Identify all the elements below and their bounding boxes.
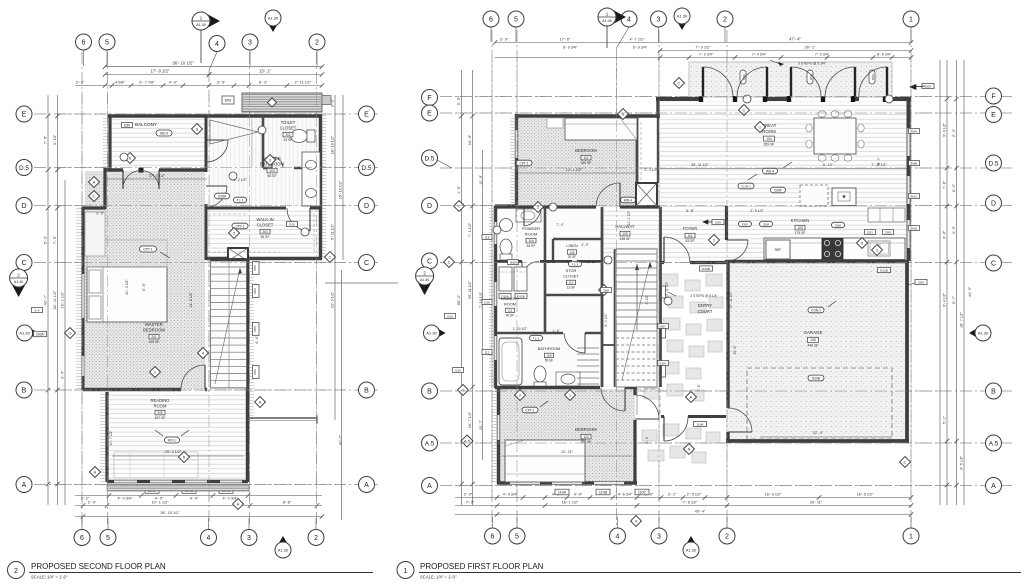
svg-text:C: C <box>904 460 907 465</box>
svg-text:D08: D08 <box>603 288 609 292</box>
svg-text:36'- 10 1/2": 36'- 10 1/2" <box>160 511 180 515</box>
svg-text:A: A <box>259 400 262 405</box>
svg-text:24 SF: 24 SF <box>283 138 292 142</box>
svg-text:D.5: D.5 <box>425 155 435 162</box>
svg-text:18'- 10 1/2": 18'- 10 1/2" <box>331 135 335 154</box>
svg-text:135 SF: 135 SF <box>620 237 631 241</box>
svg-text:2'- 5 1/2": 2'- 5 1/2" <box>687 492 702 496</box>
svg-text:36'- 10 1/2": 36'- 10 1/2" <box>172 61 194 66</box>
svg-text:2'- 9 1/2": 2'- 9 1/2" <box>750 209 764 213</box>
svg-text:RD-1: RD-1 <box>168 438 176 442</box>
svg-text:4: 4 <box>616 534 620 541</box>
svg-text:D06: D06 <box>660 361 666 365</box>
svg-text:13 SF: 13 SF <box>567 285 576 289</box>
svg-text:5: 5 <box>106 535 110 542</box>
svg-text:A1.40: A1.40 <box>602 19 611 23</box>
svg-text:BEDROOM: BEDROOM <box>575 427 597 432</box>
svg-text:D58: D58 <box>835 223 841 227</box>
svg-text:8'- 9 3/4": 8'- 9 3/4" <box>563 45 578 49</box>
svg-text:3: 3 <box>657 534 661 541</box>
svg-text:7'- 5": 7'- 5" <box>53 235 57 244</box>
svg-text:HALLWAY: HALLWAY <box>615 224 634 229</box>
svg-text:110A: 110A <box>558 490 567 494</box>
svg-text:96 SF: 96 SF <box>260 235 269 239</box>
svg-text:202: 202 <box>285 133 291 137</box>
svg-text:FOYER: FOYER <box>683 226 697 231</box>
svg-text:13'- 1": 13'- 1" <box>259 68 271 73</box>
svg-text:34 SF: 34 SF <box>526 244 535 248</box>
svg-text:A: A <box>237 502 240 507</box>
svg-text:3'- 8": 3'- 8" <box>943 230 947 239</box>
svg-text:D59: D59 <box>715 220 721 224</box>
svg-text:7'- 9 3/4": 7'- 9 3/4" <box>699 52 714 56</box>
svg-text:BALCONY: BALCONY <box>135 122 157 127</box>
svg-text:D53: D53 <box>867 230 873 234</box>
svg-text:16'- 1 1/2": 16'- 1 1/2" <box>562 500 579 504</box>
svg-text:A: A <box>427 483 432 490</box>
svg-text:63 SF: 63 SF <box>685 239 694 243</box>
svg-text:7'- 9": 7'- 9" <box>466 500 475 504</box>
svg-text:G: G <box>68 331 71 336</box>
svg-text:PROPOSED FIRST FLOOR PLAN: PROPOSED FIRST FLOOR PLAN <box>420 562 544 571</box>
svg-text:10'- 11 1/2": 10'- 11 1/2" <box>665 281 669 298</box>
svg-text:ENTRY: ENTRY <box>698 303 712 308</box>
svg-text:6 - 7 7/8": 6 - 7 7/8" <box>139 80 155 84</box>
svg-text:CPT-1: CPT-1 <box>519 161 528 165</box>
svg-text:6'- 4 1/2": 6'- 4 1/2" <box>943 292 947 307</box>
svg-text:CPT-1: CPT-1 <box>235 224 244 228</box>
svg-text:3'- 10": 3'- 10" <box>53 134 57 145</box>
svg-text:2: 2 <box>14 568 18 575</box>
svg-text:D10B: D10B <box>702 267 710 271</box>
svg-text:104: 104 <box>766 137 772 141</box>
svg-text:WD-4: WD-4 <box>766 169 774 173</box>
svg-text:D09: D09 <box>918 280 924 284</box>
svg-text:2'- 9": 2'- 9" <box>464 492 473 496</box>
svg-text:4'- 0": 4'- 0" <box>169 80 178 84</box>
svg-text:C: C <box>743 108 746 113</box>
svg-text:D: D <box>364 203 369 210</box>
svg-text:30'- 8": 30'- 8" <box>733 345 737 355</box>
svg-text:6: 6 <box>82 40 86 47</box>
svg-text:16'- 1 1/2": 16'- 1 1/2" <box>61 291 65 309</box>
svg-text:A: A <box>93 180 96 185</box>
svg-text:204: 204 <box>262 230 268 234</box>
svg-text:POWDER: POWDER <box>522 226 540 231</box>
svg-text:CPT-1: CPT-1 <box>143 247 153 251</box>
svg-text:W0.4: W0.4 <box>160 131 168 135</box>
svg-text:D: D <box>427 203 432 210</box>
svg-text:D13: D13 <box>455 368 461 372</box>
svg-text:45'- 4": 45'- 4" <box>695 509 706 513</box>
svg-text:A: A <box>688 447 691 452</box>
svg-text:D56: D56 <box>253 288 257 294</box>
svg-text:A1.30: A1.30 <box>978 331 989 336</box>
svg-text:11'- 1 1/2": 11'- 1 1/2" <box>627 210 631 225</box>
svg-text:8'- 7": 8'- 7" <box>877 157 881 164</box>
svg-text:WALK-IN: WALK-IN <box>256 217 273 222</box>
svg-text:C: C <box>93 194 96 199</box>
svg-text:CLOSET: CLOSET <box>257 223 274 228</box>
svg-text:7'- 6 1/2": 7'- 6 1/2" <box>683 500 698 504</box>
svg-text:2'- 4": 2'- 4" <box>645 435 649 443</box>
svg-text:3'- 4": 3'- 4" <box>61 370 65 379</box>
svg-text:B: B <box>991 389 996 396</box>
svg-text:5: 5 <box>514 17 518 24</box>
svg-text:6: 6 <box>80 535 84 542</box>
svg-text:TL-1: TL-1 <box>572 262 579 266</box>
svg-text:3: 3 <box>247 535 251 542</box>
svg-text:D29F: D29F <box>774 188 782 192</box>
svg-text:D19: D19 <box>289 222 295 226</box>
svg-text:W02: W02 <box>225 98 232 102</box>
svg-text:D09: D09 <box>925 84 931 88</box>
svg-text:C: C <box>991 261 996 268</box>
svg-text:4'- 0": 4'- 0" <box>190 496 199 500</box>
svg-text:LINEN: LINEN <box>566 244 577 248</box>
svg-text:D4D: D4D <box>911 226 918 230</box>
svg-text:4'- 6 3/4": 4'- 6 3/4" <box>618 492 633 496</box>
svg-text:C: C <box>678 81 681 86</box>
svg-text:STOR: STOR <box>566 268 577 273</box>
svg-text:2'- 4": 2'- 4" <box>952 128 956 137</box>
svg-text:D.5: D.5 <box>362 165 372 172</box>
svg-text:A1.40: A1.40 <box>196 23 205 27</box>
svg-text:4 5/8": 4 5/8" <box>115 80 125 84</box>
svg-text:59 SF: 59 SF <box>545 358 554 362</box>
svg-text:103: 103 <box>583 435 589 439</box>
svg-text:D12B: D12B <box>880 268 888 272</box>
svg-text:D.5: D.5 <box>989 160 999 167</box>
svg-text:2'- 11 1/2": 2'- 11 1/2" <box>295 80 312 84</box>
svg-text:KITCHEN: KITCHEN <box>791 218 809 223</box>
svg-text:179 SF: 179 SF <box>795 231 806 235</box>
svg-text:E: E <box>364 112 369 119</box>
svg-text:4'- 7 1/2": 4'- 7 1/2" <box>630 37 646 41</box>
svg-text:6'- 6": 6'- 6" <box>142 282 146 290</box>
svg-text:D: D <box>21 203 26 210</box>
svg-text:110C: 110C <box>638 490 647 494</box>
svg-text:D4B: D4B <box>911 161 917 165</box>
svg-text:PROPOSED SECOND FLOOR PLAN: PROPOSED SECOND FLOOR PLAN <box>31 562 166 571</box>
svg-text:10'- 9": 10'- 9" <box>468 134 472 145</box>
svg-text:A1.30: A1.30 <box>278 548 289 553</box>
svg-text:30'- 11": 30'- 11" <box>810 500 823 504</box>
svg-text:D59: D59 <box>885 230 891 234</box>
svg-text:5: 5 <box>105 40 109 47</box>
svg-text:A1.30: A1.30 <box>426 331 437 336</box>
svg-text:3: 3 <box>248 40 252 47</box>
svg-text:ROOM: ROOM <box>153 404 167 409</box>
svg-text:440 SF: 440 SF <box>808 343 819 347</box>
svg-text:8'- 8": 8'- 8" <box>686 209 694 213</box>
svg-text:7'- 9 1/2": 7'- 9 1/2" <box>696 45 712 49</box>
svg-text:CPT-1: CPT-1 <box>525 408 534 412</box>
svg-text:D4A: D4A <box>911 129 917 133</box>
svg-text:5'- 5": 5'- 5" <box>457 96 461 105</box>
svg-text:6'- 0": 6'- 0" <box>952 183 956 192</box>
svg-text:CON-1: CON-1 <box>741 184 751 188</box>
svg-text:BEDROOM: BEDROOM <box>143 328 165 333</box>
svg-text:G: G <box>461 388 464 393</box>
svg-text:157 SF: 157 SF <box>155 416 166 420</box>
svg-text:A: A <box>991 483 996 490</box>
svg-text:3'- 1": 3'- 1" <box>668 492 677 496</box>
svg-text:D28A: D28A <box>218 194 227 198</box>
svg-text:102: 102 <box>583 156 589 160</box>
svg-text:1'- 6": 1'- 6" <box>457 185 461 193</box>
svg-text:32'- 11 1/2": 32'- 11 1/2" <box>53 290 57 310</box>
svg-text:6: 6 <box>489 17 493 24</box>
svg-text:4: 4 <box>627 17 631 24</box>
svg-text:D07: D07 <box>660 324 666 328</box>
svg-text:20'- 11 1/2": 20'- 11 1/2" <box>468 280 472 299</box>
svg-text:1'- 10 1/2": 1'- 10 1/2" <box>513 327 527 331</box>
svg-text:SCALE: 1/4" = 1'-0": SCALE: 1/4" = 1'-0" <box>420 575 457 580</box>
svg-text:A.5: A.5 <box>989 440 999 447</box>
svg-text:40 SF: 40 SF <box>506 313 515 317</box>
svg-text:6'- 9 3/4": 6'- 9 3/4" <box>633 45 648 49</box>
svg-text:A1.40: A1.40 <box>14 280 23 284</box>
svg-text:103: 103 <box>797 226 803 230</box>
svg-text:4'- 5": 4'- 5" <box>952 225 956 234</box>
svg-text:D56: D56 <box>253 326 257 332</box>
svg-text:14'- 8 1/2": 14'- 8 1/2" <box>189 292 193 308</box>
svg-text:A1.30: A1.30 <box>677 14 688 19</box>
svg-text:D56: D56 <box>253 369 257 375</box>
svg-text:118: 118 <box>485 235 490 239</box>
svg-text:C: C <box>427 259 432 266</box>
svg-text:D.5: D.5 <box>19 165 29 172</box>
svg-text:D55: D55 <box>742 222 748 226</box>
svg-text:C: C <box>364 260 369 267</box>
svg-text:1: 1 <box>909 17 913 24</box>
svg-text:A: A <box>94 470 97 475</box>
svg-text:TOILET: TOILET <box>281 120 296 125</box>
svg-text:COURT: COURT <box>698 309 713 314</box>
svg-text:161 SF: 161 SF <box>581 440 592 444</box>
svg-text:359 SF: 359 SF <box>764 142 775 146</box>
svg-text:106: 106 <box>569 250 574 254</box>
svg-text:44'- 9": 44'- 9" <box>968 286 972 297</box>
svg-text:66 SF: 66 SF <box>267 174 276 178</box>
svg-text:3'- 0": 3'- 0" <box>581 243 589 247</box>
svg-text:15'- 2 1/2": 15'- 2 1/2" <box>165 450 182 454</box>
svg-text:13'- 3 1/2": 13'- 3 1/2" <box>331 291 335 308</box>
svg-text:A1.30: A1.30 <box>19 331 30 336</box>
svg-text:E: E <box>991 112 996 119</box>
svg-text:REF: REF <box>775 248 782 252</box>
svg-text:D58: D58 <box>763 222 769 226</box>
svg-text:5'- 1": 5'- 1" <box>943 415 947 424</box>
svg-text:109: 109 <box>546 354 551 358</box>
svg-text:20 SF: 20 SF <box>568 255 577 259</box>
svg-text:110A: 110A <box>697 422 705 426</box>
svg-text:7'- 0 3/4": 7'- 0 3/4" <box>815 52 830 56</box>
svg-text:D30: D30 <box>124 123 131 127</box>
svg-text:4'- 5 1/2": 4'- 5 1/2" <box>960 455 964 470</box>
svg-text:E: E <box>427 111 432 118</box>
svg-text:8'- 1 1/2": 8'- 1 1/2" <box>604 313 608 327</box>
svg-text:16'- 5 1/2": 16'- 5 1/2" <box>857 492 874 496</box>
svg-text:2 STEPS @ 5 1/4": 2 STEPS @ 5 1/4" <box>690 294 718 298</box>
svg-text:TL-1: TL-1 <box>237 198 244 202</box>
svg-text:111: 111 <box>508 309 513 313</box>
svg-text:205: 205 <box>157 411 163 415</box>
svg-text:4: 4 <box>207 535 211 542</box>
svg-text:7'- 4 3/4": 7'- 4 3/4" <box>752 52 767 56</box>
svg-text:7'- 4": 7'- 4" <box>556 223 564 227</box>
svg-text:B: B <box>22 388 27 395</box>
svg-text:C: C <box>21 260 26 267</box>
svg-text:4'- 0 3/4": 4'- 0 3/4" <box>118 496 134 500</box>
svg-text:10'- 7 1/2": 10'- 7 1/2" <box>109 430 113 446</box>
svg-text:1: 1 <box>404 568 408 575</box>
svg-text:WD-4: WD-4 <box>624 198 632 202</box>
svg-text:20'- 3 1/2": 20'- 3 1/2" <box>125 279 129 295</box>
svg-text:110B: 110B <box>599 490 608 494</box>
svg-text:108: 108 <box>810 338 816 342</box>
svg-text:5'- 3": 5'- 3" <box>44 235 48 244</box>
svg-text:B: B <box>364 388 369 395</box>
svg-text:16'- 7 1/2": 16'- 7 1/2" <box>468 411 472 428</box>
svg-text:GARAGE: GARAGE <box>804 330 823 335</box>
svg-text:D: D <box>991 201 996 208</box>
svg-text:CON-1: CON-1 <box>811 308 821 312</box>
svg-text:BEDROOM: BEDROOM <box>575 148 597 153</box>
svg-text:C: C <box>458 204 461 209</box>
svg-text:READING: READING <box>150 398 169 403</box>
svg-text:104: 104 <box>528 239 534 243</box>
svg-text:5: 5 <box>515 534 519 541</box>
svg-text:2: 2 <box>723 17 727 24</box>
svg-text:3'- 10": 3'- 10" <box>645 295 649 305</box>
svg-text:2'- 9": 2'- 9" <box>88 501 97 505</box>
svg-text:A1.30: A1.30 <box>268 16 279 21</box>
svg-text:10'- 1 1/2": 10'- 1 1/2" <box>151 501 169 505</box>
svg-text:C: C <box>329 255 332 260</box>
svg-text:8'- 6 3/4": 8'- 6 3/4" <box>877 52 892 56</box>
svg-text:110: 110 <box>569 281 574 285</box>
svg-text:203A: 203A <box>36 332 45 336</box>
svg-text:17'- 0 1/2": 17'- 0 1/2" <box>151 68 170 73</box>
svg-text:1: 1 <box>909 534 913 541</box>
svg-text:CLOSET: CLOSET <box>563 273 579 278</box>
svg-text:3 STEPS @ 5 3/4": 3 STEPS @ 5 3/4" <box>798 62 827 66</box>
svg-text:101: 101 <box>687 234 693 238</box>
svg-text:2: 2 <box>315 40 319 47</box>
svg-text:17'- 0 1/2": 17'- 0 1/2" <box>149 174 166 178</box>
svg-text:3'- 5": 3'- 5" <box>217 80 226 84</box>
svg-text:A: A <box>690 395 693 400</box>
svg-text:18'- 7 1/2": 18'- 7 1/2" <box>960 311 964 327</box>
svg-text:E: E <box>22 112 27 119</box>
svg-text:2'- 9": 2'- 9" <box>500 37 509 41</box>
svg-text:112: 112 <box>485 350 490 354</box>
svg-text:7'- 8": 7'- 8" <box>697 383 701 391</box>
svg-text:17'- 11 1/2": 17'- 11 1/2" <box>729 291 733 308</box>
svg-text:2'- 4 1/2": 2'- 4 1/2" <box>644 168 658 172</box>
svg-text:2: 2 <box>725 534 729 541</box>
svg-text:150 SF: 150 SF <box>581 161 592 165</box>
svg-text:4'- 0 3/4": 4'- 0 3/4" <box>223 496 239 500</box>
svg-text:A.5: A.5 <box>425 440 435 447</box>
svg-text:2'- 2": 2'- 2" <box>76 80 85 84</box>
svg-text:7'- 8": 7'- 8" <box>943 180 947 189</box>
svg-text:15'- 10 1/2": 15'- 10 1/2" <box>339 180 343 199</box>
svg-text:ROOM: ROOM <box>504 301 516 306</box>
svg-text:F: F <box>991 94 995 101</box>
svg-text:4'- 0": 4'- 0" <box>574 492 583 496</box>
svg-text:A1.30: A1.30 <box>686 548 697 553</box>
svg-text:30'- 1": 30'- 1" <box>805 45 816 49</box>
svg-text:TL-1: TL-1 <box>533 336 540 340</box>
svg-text:8'- 3": 8'- 3" <box>259 80 268 84</box>
svg-text:6'- 10": 6'- 10" <box>823 163 834 167</box>
svg-text:3: 3 <box>657 17 661 24</box>
svg-text:D15: D15 <box>447 314 453 318</box>
svg-text:22'- 4": 22'- 4" <box>813 431 824 435</box>
svg-text:12'- 11": 12'- 11" <box>561 450 574 454</box>
svg-text:D5A: D5A <box>871 74 875 80</box>
svg-text:2: 2 <box>314 535 318 542</box>
svg-text:105: 105 <box>622 232 628 236</box>
svg-text:16'- 5 1/2": 16'- 5 1/2" <box>765 492 782 496</box>
svg-text:SCALE: 1/4" = 1'-0": SCALE: 1/4" = 1'-0" <box>31 575 68 580</box>
svg-text:13'- 1 1/2": 13'- 1 1/2" <box>566 168 583 172</box>
svg-text:5'- 11 1/2": 5'- 11 1/2" <box>331 223 335 240</box>
svg-text:4'- 4": 4'- 4" <box>255 335 259 343</box>
svg-text:35'- 11 1/2": 35'- 11 1/2" <box>691 163 709 167</box>
svg-text:17'- 6": 17'- 6" <box>560 37 571 41</box>
svg-text:7'- 6": 7'- 6" <box>44 135 48 144</box>
svg-text:4: 4 <box>215 41 219 48</box>
svg-text:201: 201 <box>151 335 157 339</box>
svg-text:6: 6 <box>491 534 495 541</box>
svg-text:47'- 4": 47'- 4" <box>789 36 801 41</box>
svg-text:BATHROOM: BATHROOM <box>538 346 561 351</box>
svg-text:A: A <box>364 482 369 489</box>
svg-text:203: 203 <box>269 169 275 173</box>
svg-text:199 SF: 199 SF <box>149 340 160 344</box>
svg-text:D16: D16 <box>484 300 490 304</box>
svg-text:2'-4: 2'-4 <box>35 308 40 312</box>
svg-text:A: A <box>22 482 27 489</box>
svg-text:6'- 7": 6'- 7" <box>952 295 956 304</box>
svg-text:ROOM: ROOM <box>762 129 776 134</box>
svg-text:D20B: D20B <box>812 376 820 380</box>
svg-text:A1.40: A1.40 <box>420 278 429 282</box>
svg-text:8'- 6": 8'- 6" <box>283 501 292 505</box>
svg-text:9'- 9 1/2": 9'- 9 1/2" <box>943 122 947 137</box>
svg-text:2'- 9": 2'- 9" <box>96 212 104 216</box>
svg-text:4'- 9 3/4": 4'- 9 3/4" <box>503 492 518 496</box>
svg-text:F: F <box>427 95 431 102</box>
svg-text:7'- 1 1/2": 7'- 1 1/2" <box>468 222 472 237</box>
svg-text:CLOSET: CLOSET <box>280 126 297 131</box>
svg-text:MASTER: MASTER <box>145 322 162 327</box>
svg-text:D56: D56 <box>253 265 257 271</box>
svg-text:D4C: D4C <box>911 194 918 198</box>
svg-text:42'- 7": 42'- 7" <box>44 294 48 305</box>
svg-text:ROOM: ROOM <box>525 232 537 237</box>
svg-text:B: B <box>427 389 432 396</box>
svg-text:66'- 2": 66'- 2" <box>457 294 461 305</box>
svg-text:1'- 6": 1'- 6" <box>552 329 559 333</box>
svg-text:42'- 7": 42'- 7" <box>339 434 343 445</box>
